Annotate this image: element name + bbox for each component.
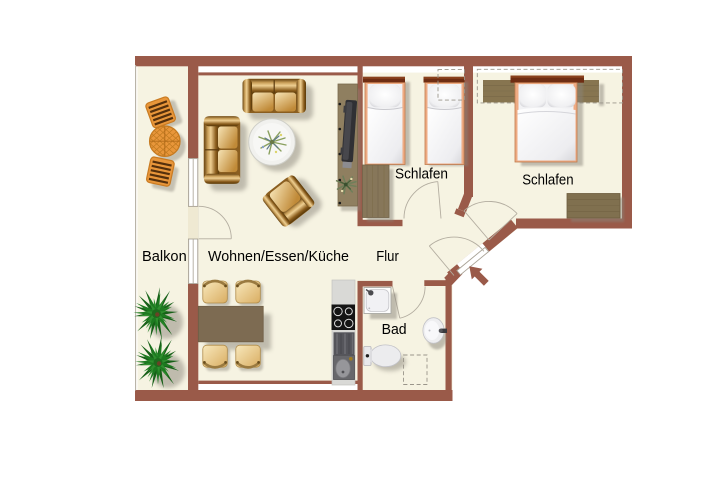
svg-text:Schlafen: Schlafen bbox=[395, 166, 448, 182]
svg-text:Schlafen: Schlafen bbox=[522, 172, 573, 188]
svg-text:Balkon: Balkon bbox=[142, 249, 187, 265]
svg-text:Flur: Flur bbox=[376, 249, 399, 265]
svg-text:Wohnen/Essen/Küche: Wohnen/Essen/Küche bbox=[208, 249, 349, 265]
svg-text:Bad: Bad bbox=[382, 322, 407, 338]
